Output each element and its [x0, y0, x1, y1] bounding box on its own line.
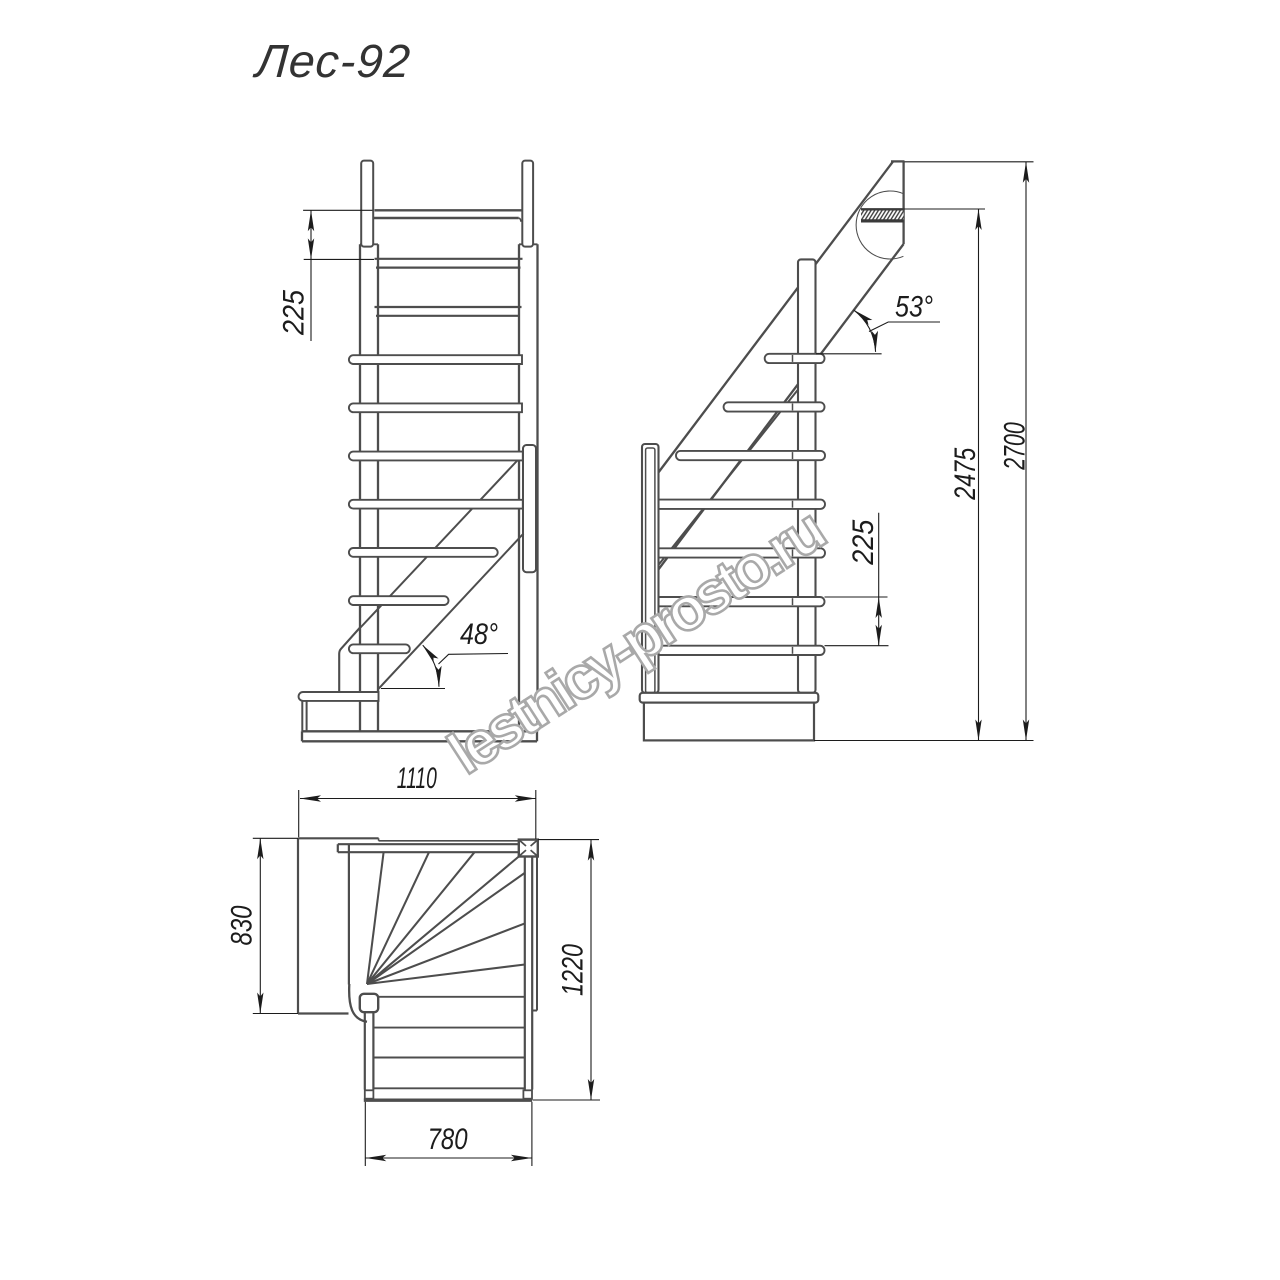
- svg-text:53°: 53°: [895, 291, 933, 324]
- svg-text:Лес-92: Лес-92: [251, 35, 412, 87]
- svg-text:48°: 48°: [460, 618, 498, 651]
- svg-text:780: 780: [428, 1123, 468, 1156]
- svg-text:1110: 1110: [397, 762, 437, 795]
- svg-text:2700: 2700: [999, 422, 1032, 470]
- svg-text:2475: 2475: [949, 447, 982, 500]
- svg-text:225: 225: [847, 520, 880, 566]
- svg-text:225: 225: [278, 290, 311, 336]
- svg-text:830: 830: [226, 905, 259, 945]
- svg-text:1220: 1220: [557, 944, 590, 996]
